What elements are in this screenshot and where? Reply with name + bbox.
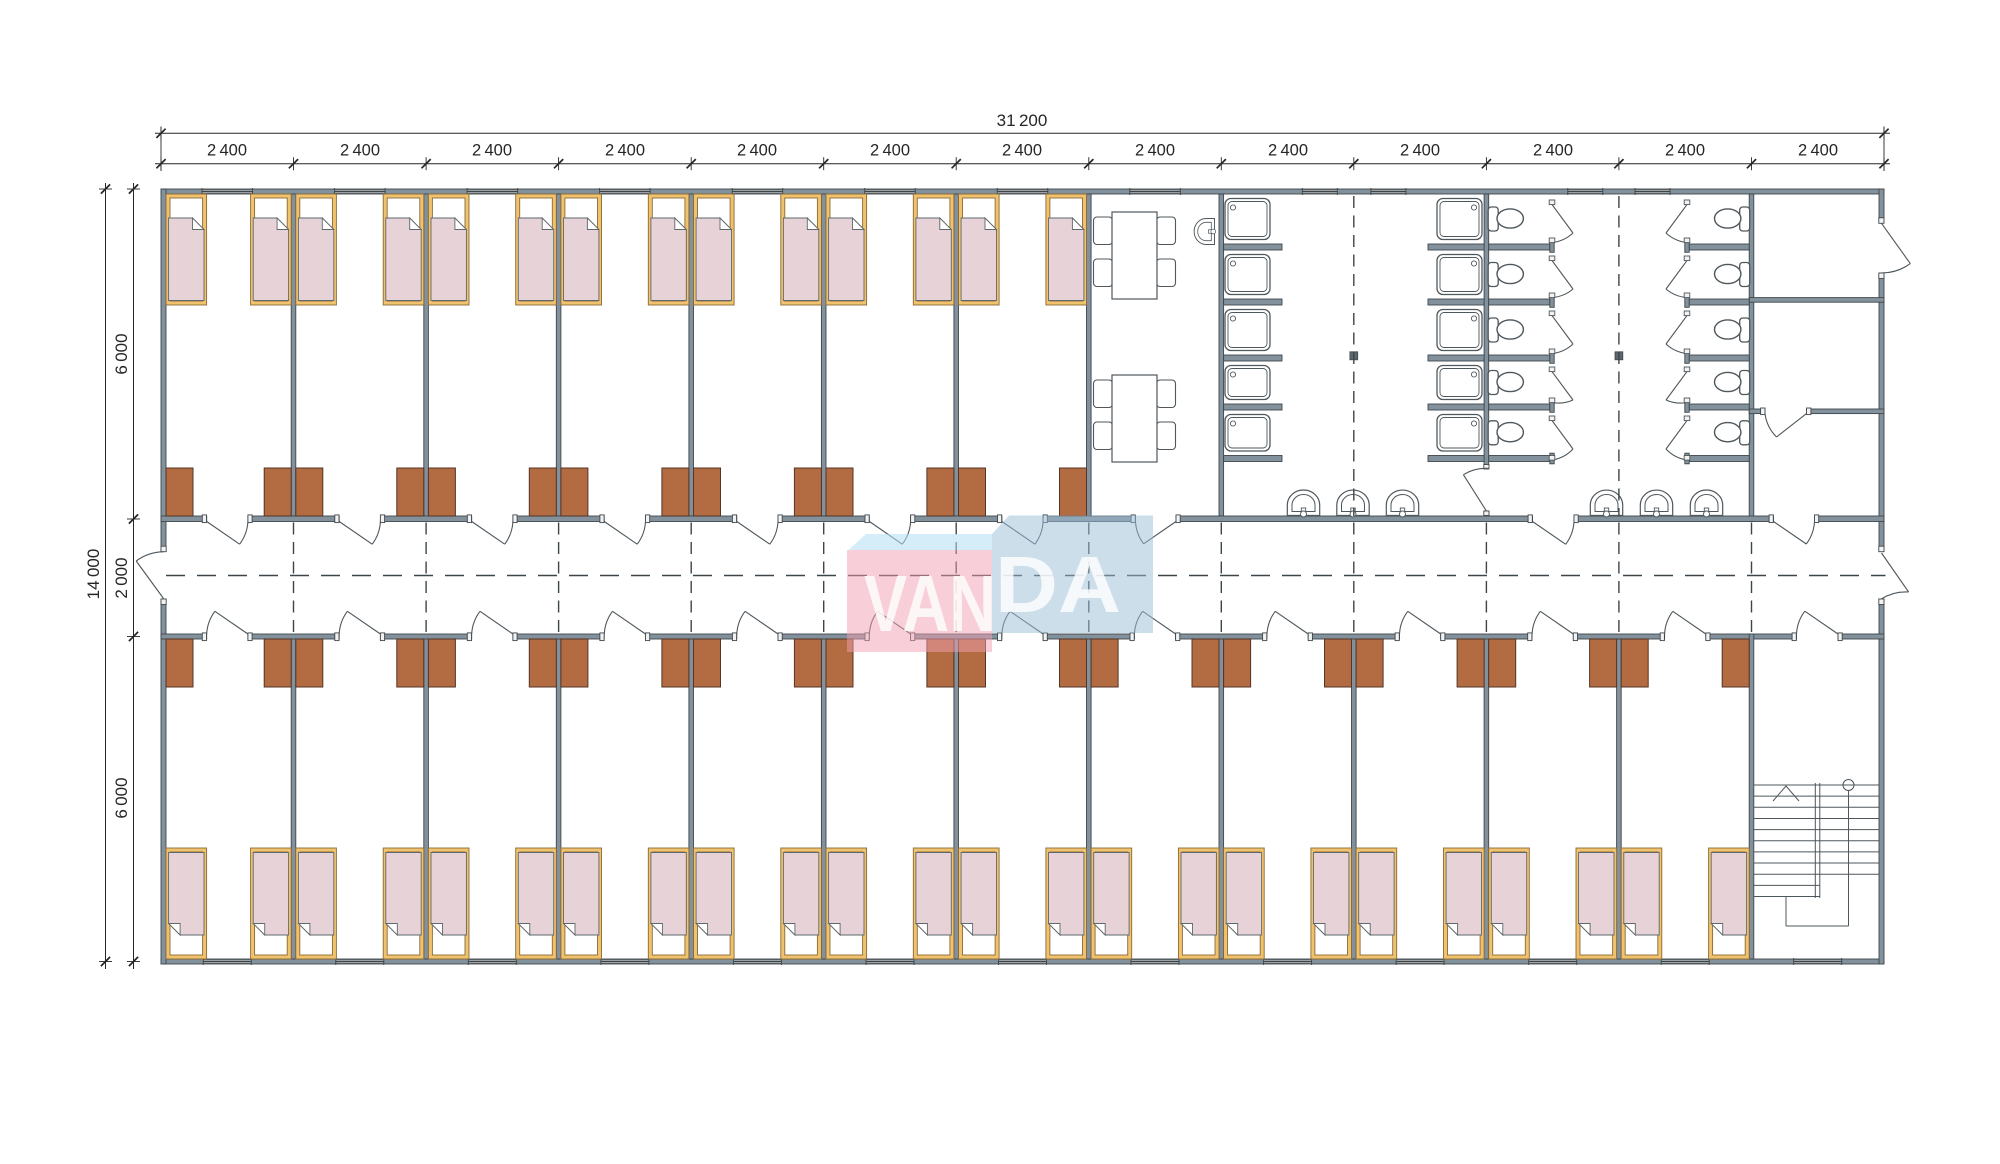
svg-text:2 400: 2 400: [870, 142, 910, 160]
svg-text:2 400: 2 400: [605, 142, 645, 160]
svg-text:2 400: 2 400: [207, 142, 247, 160]
svg-text:6 000: 6 000: [112, 333, 131, 374]
svg-text:2 400: 2 400: [737, 142, 777, 160]
svg-text:2 400: 2 400: [1135, 142, 1175, 160]
svg-text:2 400: 2 400: [1400, 142, 1440, 160]
svg-text:VAN: VAN: [864, 559, 996, 648]
svg-text:2 400: 2 400: [1798, 142, 1838, 160]
svg-text:2 400: 2 400: [472, 142, 512, 160]
svg-text:31 200: 31 200: [997, 111, 1048, 130]
svg-text:2 400: 2 400: [1665, 142, 1705, 160]
svg-text:6 000: 6 000: [112, 777, 131, 818]
svg-text:2 400: 2 400: [340, 142, 380, 160]
svg-text:2 400: 2 400: [1268, 142, 1308, 160]
svg-text:2 400: 2 400: [1002, 142, 1042, 160]
svg-text:2 400: 2 400: [1533, 142, 1573, 160]
svg-text:2 000: 2 000: [112, 557, 131, 598]
svg-text:DA: DA: [995, 540, 1121, 629]
svg-text:14 000: 14 000: [84, 549, 103, 600]
